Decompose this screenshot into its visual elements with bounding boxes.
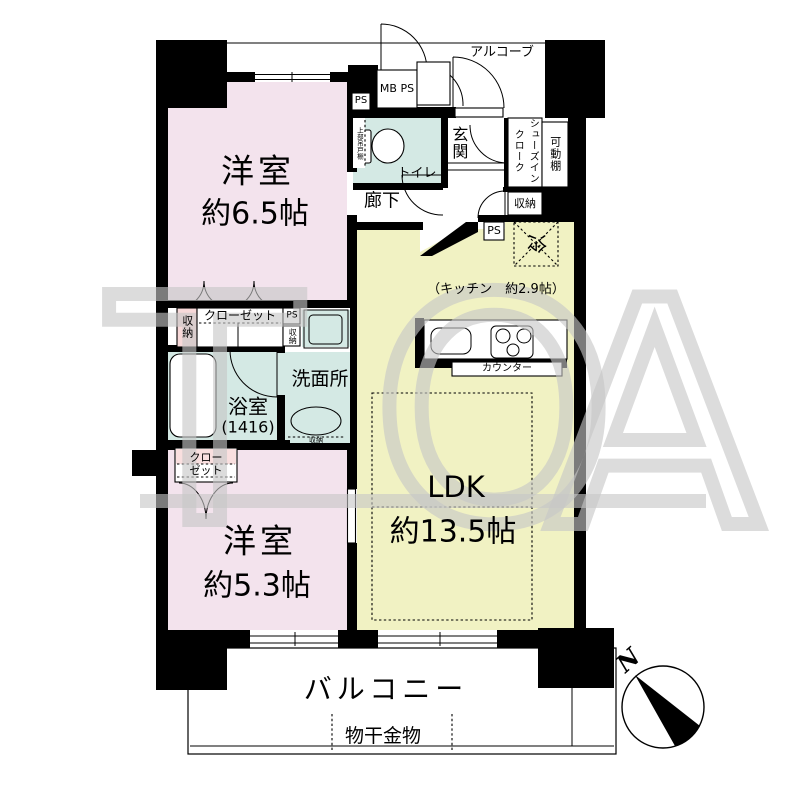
alcove-label: アルコーブ (470, 46, 534, 60)
sic-label-col1: クローク (512, 129, 523, 173)
floor-plan: T O A アルコーブ MB PS PS 玄関 シューズイン クローク 可動棚 … (0, 0, 800, 800)
watermark-letter-a: A (548, 234, 763, 598)
counter-label: カウンター (482, 364, 532, 375)
washroom-label: 洗面所 (291, 370, 348, 390)
room2-size: 約5.3帖 (203, 570, 311, 602)
bath-size-label: (1416) (221, 420, 274, 437)
hallway-label: 廊下 (364, 193, 400, 212)
storage-genkan-label: 収納 (514, 198, 536, 210)
ps-label-mid: PS (487, 225, 501, 237)
kitchen-caption: （キッチン 約2.9帖） (427, 283, 565, 297)
sic-label-col2: シューズイン (527, 118, 538, 184)
hall-door-right-arc (478, 191, 505, 218)
compass (622, 666, 704, 748)
window-room2-bottom (250, 632, 338, 646)
entrance-label: 玄関 (450, 126, 467, 160)
toilet-label: トイレ (397, 167, 436, 181)
entry-threshold (455, 108, 503, 117)
room1-size: 約6.5帖 (201, 198, 309, 230)
closet2-line2: ゼット (190, 465, 223, 477)
room1-name: 洋室 (221, 155, 295, 190)
closet1-label: クローゼット (204, 310, 276, 323)
ldk-name: LDK (427, 472, 485, 502)
laundry-fitting-label: 物干金物 (345, 727, 421, 747)
window-ldk-bottom (378, 632, 497, 646)
ps-label-small: PS (286, 311, 297, 320)
toilet-bowl (372, 129, 404, 163)
storage-tiny-label: 収納 (309, 437, 323, 444)
movable-shelf-label: 可動棚 (549, 136, 561, 172)
bath-label: 浴室 (228, 397, 268, 418)
balcony-label: バルコニー (304, 674, 468, 703)
ps-label-top: PS (355, 96, 367, 107)
washer-area (302, 310, 355, 347)
room2-name: 洋室 (223, 525, 297, 560)
window-room1-top (255, 72, 330, 82)
closet2-line1: クロー (190, 452, 223, 464)
upper-cabinet-label: 上部吊戸棚 (356, 127, 363, 160)
sic-door-arc (470, 125, 507, 163)
entry-door-arc (453, 57, 504, 108)
ldk-size: 約13.5帖 (390, 516, 517, 548)
fridge-label: 冷 (526, 234, 547, 254)
storage-left-label: 収納 (181, 315, 193, 339)
storage-small-label: 収納 (288, 328, 296, 344)
mbps-label: MB PS (380, 83, 414, 95)
ps-compartment (417, 62, 450, 105)
